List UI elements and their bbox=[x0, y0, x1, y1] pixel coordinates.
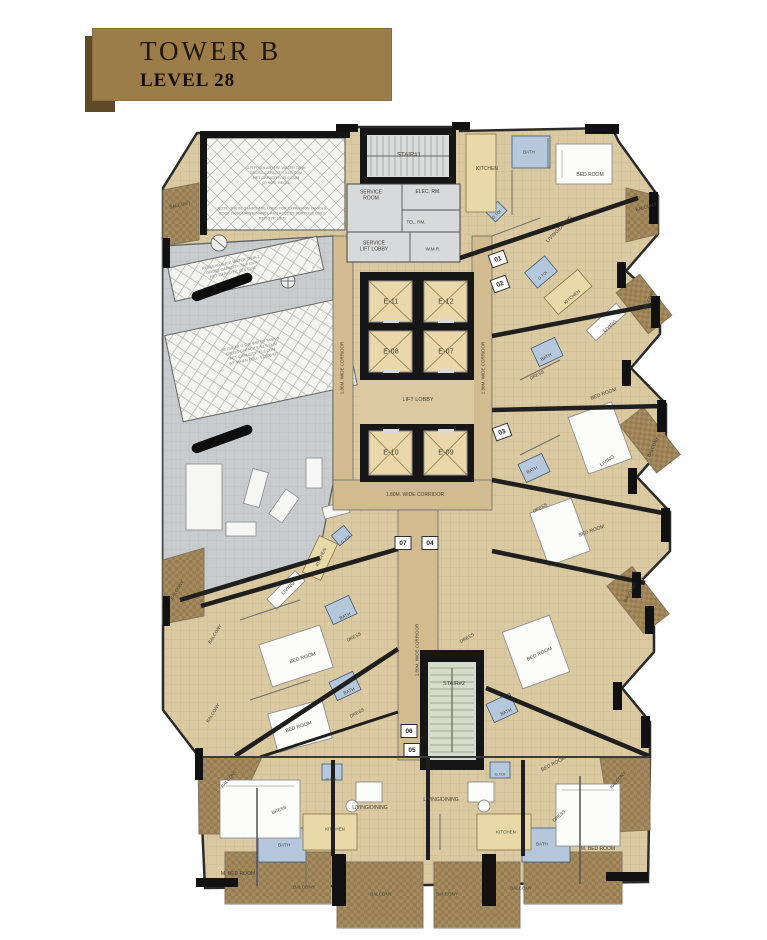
stair-2 bbox=[420, 650, 484, 770]
floor-plan-svg bbox=[0, 0, 767, 940]
floor-plan: STAIR#1SERVICE ROOMELEC. RM.TEL. RM.SERV… bbox=[0, 0, 767, 940]
elevator-core bbox=[360, 272, 474, 482]
page: TOWER B LEVEL 28 bbox=[0, 0, 767, 940]
stair-1 bbox=[360, 128, 456, 184]
service-rooms bbox=[347, 184, 460, 262]
